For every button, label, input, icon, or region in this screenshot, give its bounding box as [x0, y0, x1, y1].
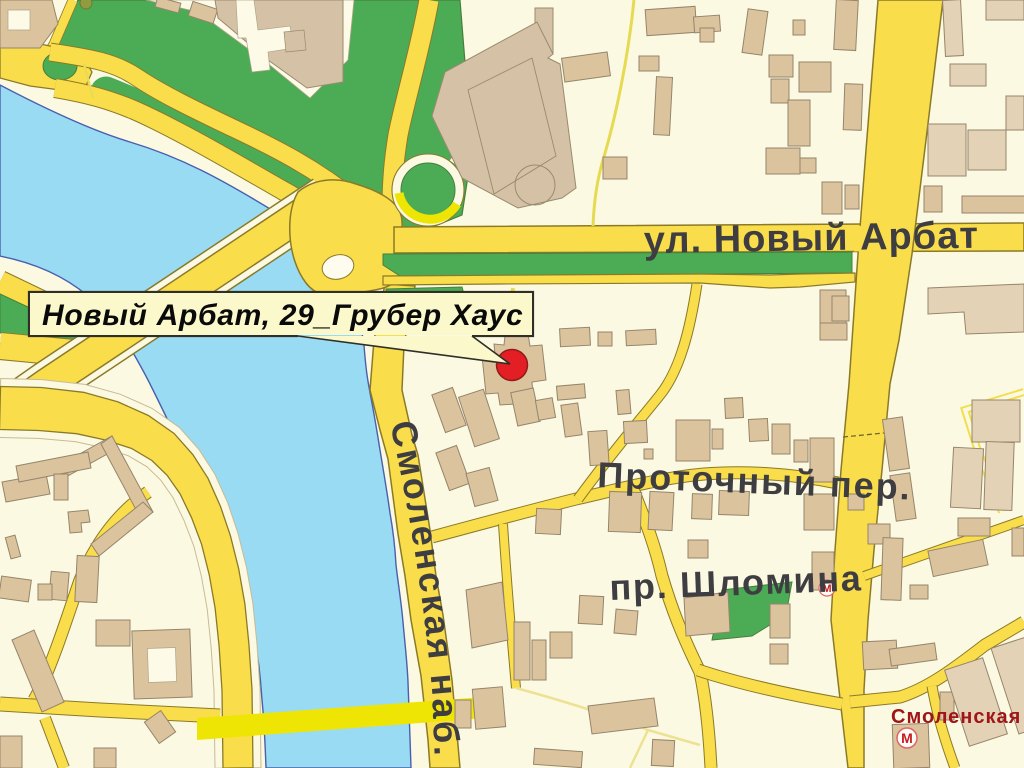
svg-text:Новый Арбат, 29_Грубер Хаус: Новый Арбат, 29_Грубер Хаус [42, 299, 523, 332]
svg-text:М: М [901, 730, 913, 746]
svg-text:ул. Новый Арбат: ул. Новый Арбат [643, 215, 979, 262]
svg-text:Смоленская: Смоленская [891, 706, 1021, 728]
